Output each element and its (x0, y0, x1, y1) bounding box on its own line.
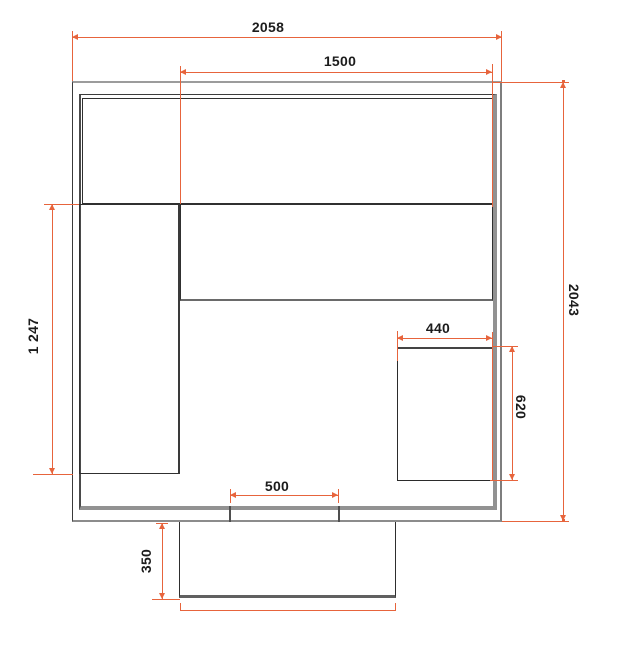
arrowhead-right (332, 492, 338, 498)
arrowhead-left (397, 335, 403, 341)
dimension-line (180, 72, 492, 73)
dimension-label-440: 440 (426, 320, 450, 336)
bottom-step-outline (179, 522, 396, 598)
arrowhead-right (496, 34, 502, 40)
dimension-line (397, 338, 492, 339)
dimension-line (52, 204, 53, 474)
bracket-line (180, 610, 396, 611)
extension-line (72, 37, 73, 81)
dimension-line (563, 82, 564, 521)
tick (506, 480, 518, 481)
arrowhead-up (509, 346, 515, 352)
arrowhead-down (509, 474, 515, 480)
technical-drawing-canvas: 2058 1500 2043 1 247 (0, 0, 623, 659)
dimension-line (72, 37, 502, 38)
arrowhead-down (49, 468, 55, 474)
tick (492, 66, 493, 78)
extension-line (492, 338, 493, 481)
door-opening-mark-left (229, 506, 231, 522)
extension-line (501, 37, 502, 81)
middle-bench-outline (180, 204, 493, 301)
dimension-label-1247: 1 247 (25, 318, 41, 355)
dimension-label-1500: 1500 (324, 53, 356, 69)
extension-line (180, 72, 181, 204)
arrowhead-right (486, 69, 492, 75)
arrowhead-right (486, 335, 492, 341)
bracket-end (180, 603, 181, 610)
left-bench-outline (79, 204, 180, 474)
dimension-label-2043: 2043 (566, 284, 582, 316)
arrowhead-up (49, 204, 55, 210)
bracket-end (395, 603, 396, 610)
arrowhead-left (230, 492, 236, 498)
arrowhead-up (159, 523, 165, 529)
door-opening-mark-right (338, 506, 340, 522)
arrowhead-left (180, 69, 186, 75)
arrowhead-down (560, 515, 566, 521)
tick (156, 599, 168, 600)
dimension-label-2058: 2058 (252, 19, 284, 35)
dimension-line (230, 495, 338, 496)
arrowhead-up (560, 82, 566, 88)
small-box-outline (397, 347, 493, 481)
dimension-label-620: 620 (513, 395, 529, 419)
tick (46, 474, 58, 475)
tick (492, 332, 493, 344)
tick (338, 489, 339, 503)
extension-line (492, 64, 493, 207)
dimension-label-350: 350 (138, 549, 154, 573)
arrowhead-down (159, 593, 165, 599)
arrowhead-left (72, 34, 78, 40)
dimension-line (162, 523, 163, 599)
top-bench-outline (82, 98, 493, 204)
dimension-label-500: 500 (265, 478, 289, 494)
